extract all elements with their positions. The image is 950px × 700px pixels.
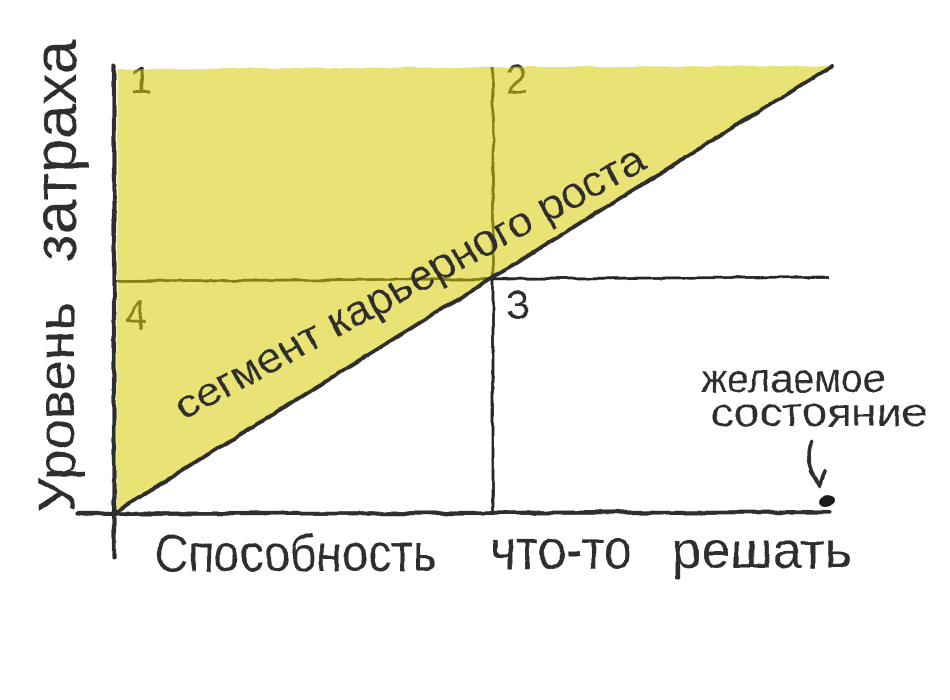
svg-text:что-то: что-то: [490, 518, 632, 582]
svg-text:состояние: состояние: [711, 391, 927, 435]
svg-text:3: 3: [506, 281, 529, 328]
svg-text:затраха: затраха: [22, 39, 89, 262]
svg-text:Способность: Способность: [155, 525, 437, 583]
svg-text:решать: решать: [672, 522, 852, 580]
svg-text:Уровень: Уровень: [28, 302, 86, 512]
